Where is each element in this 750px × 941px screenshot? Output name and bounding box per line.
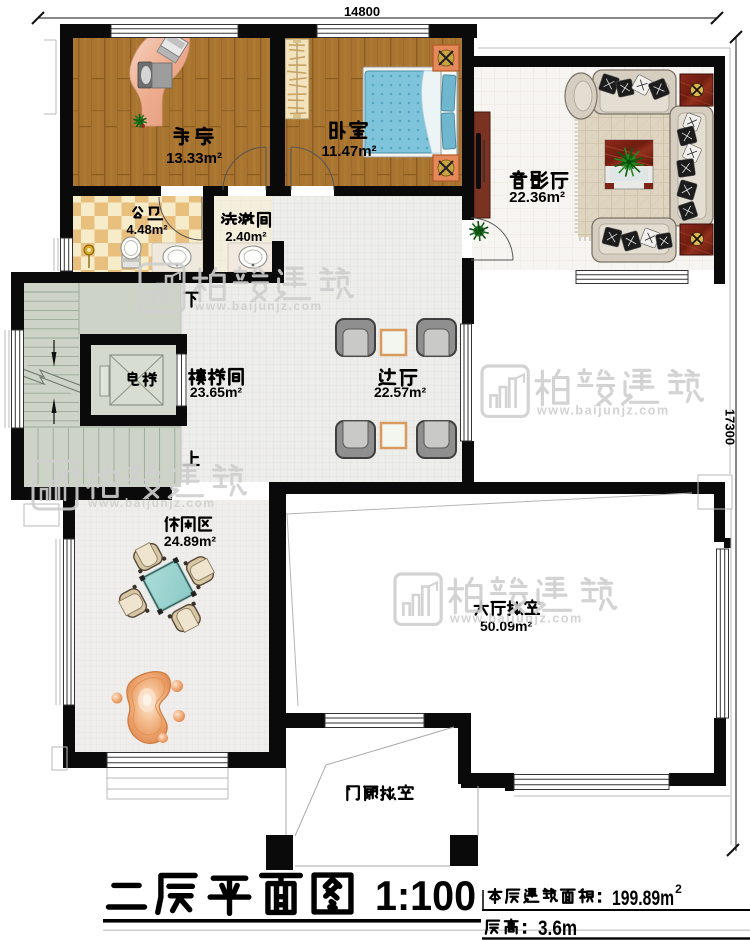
svg-text:22.57m²: 22.57m² — [374, 384, 426, 400]
svg-text:199.89m: 199.89m — [612, 887, 674, 910]
svg-text:3.6m: 3.6m — [538, 917, 577, 940]
svg-text:14800: 14800 — [344, 4, 380, 19]
svg-text:24.89m²: 24.89m² — [164, 533, 216, 549]
svg-text:1:100: 1:100 — [375, 872, 476, 919]
svg-text:11.47m²: 11.47m² — [322, 143, 377, 160]
svg-text:www.baijunjz.com: www.baijunjz.com — [536, 403, 670, 417]
svg-text:23.65m²: 23.65m² — [190, 384, 242, 400]
svg-text:13.33m²: 13.33m² — [166, 150, 222, 167]
svg-text:2.40m²: 2.40m² — [225, 229, 267, 244]
svg-text:17300: 17300 — [723, 409, 738, 445]
svg-text:www.baijunjz.com: www.baijunjz.com — [87, 496, 216, 510]
svg-text:22.36m²: 22.36m² — [509, 189, 565, 206]
svg-text:www.baijunjz.com: www.baijunjz.com — [194, 299, 323, 313]
svg-text:www.baijunjz.com: www.baijunjz.com — [449, 611, 583, 625]
svg-text:4.48m²: 4.48m² — [126, 222, 168, 237]
svg-text:2: 2 — [675, 882, 682, 896]
